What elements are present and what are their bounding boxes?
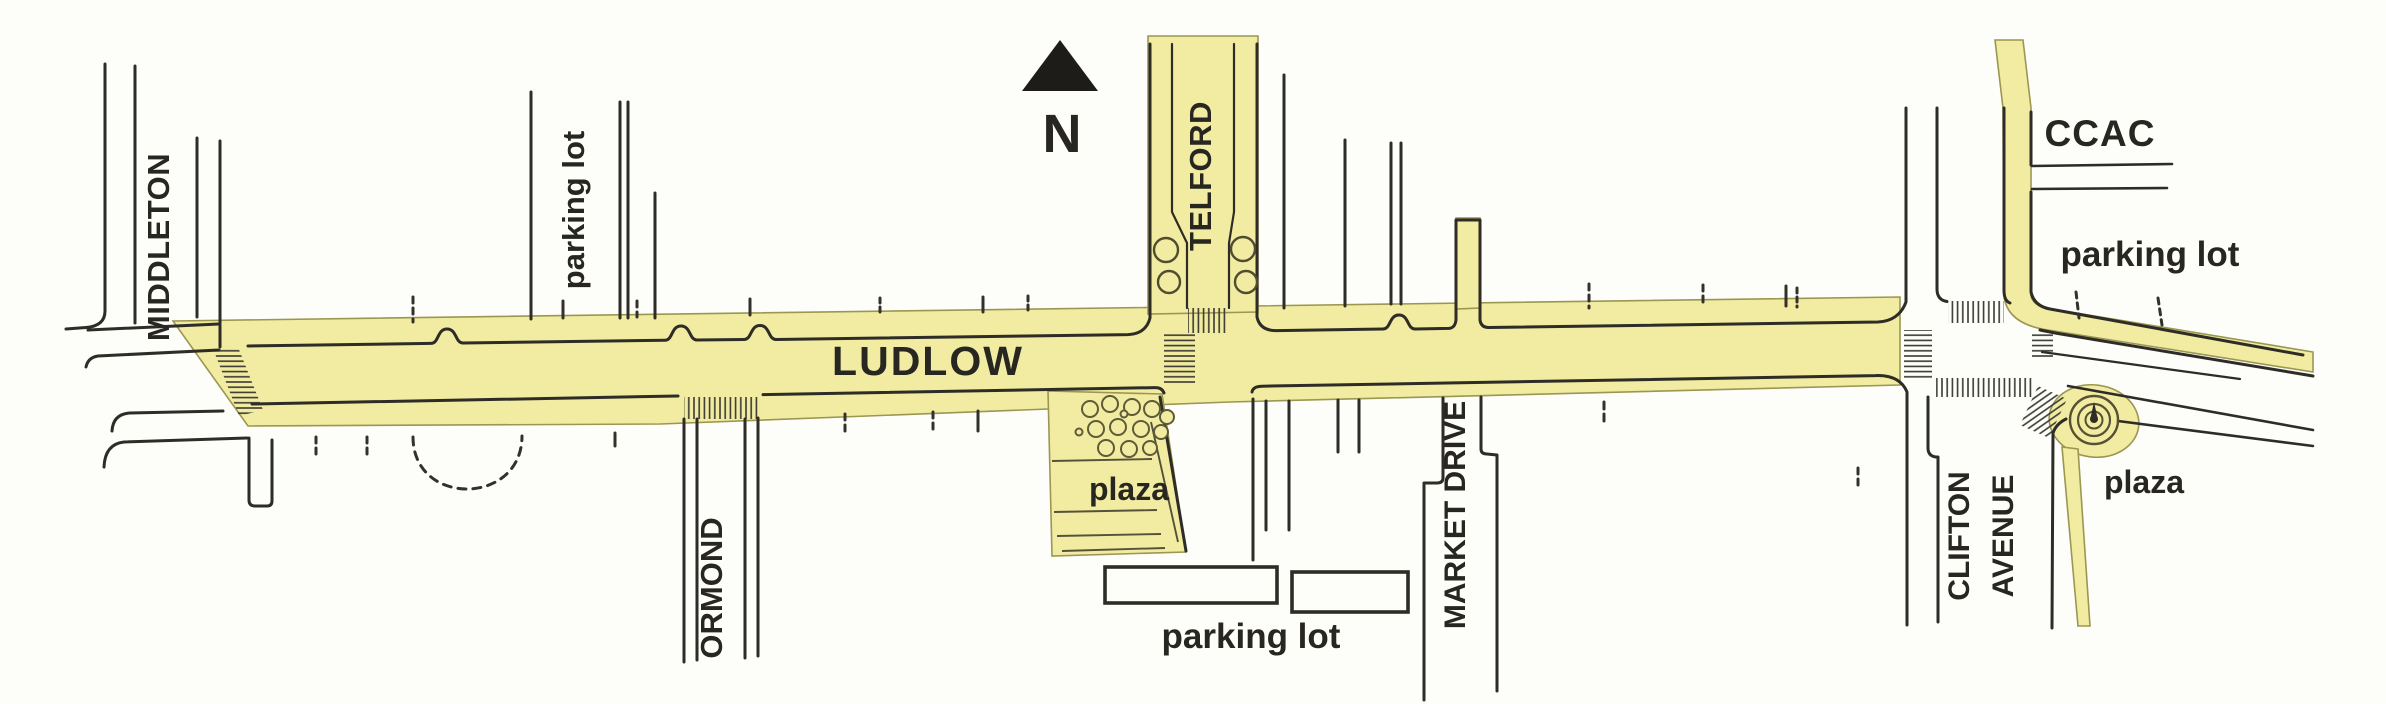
parking-row-east: [1292, 572, 1408, 612]
crosswalk-telford: [1188, 308, 1228, 333]
street-label-clifton: CLIFTON: [1943, 471, 1976, 600]
crosswalk-clifton-east: [2032, 332, 2053, 359]
crosswalk-clifton-west: [1904, 330, 1932, 381]
label-parking-lot-northeast: parking lot: [2061, 235, 2240, 274]
street-label-ludlow: LUDLOW: [832, 338, 1024, 384]
label-ccac: CCAC: [2045, 113, 2156, 154]
street-label-telford: TELFORD: [1183, 101, 1218, 251]
compass-label: N: [1043, 104, 1082, 164]
fountain-icon: [2070, 396, 2118, 444]
street-label-market-drive: MARKET DRIVE: [1439, 401, 1472, 629]
clifton-south-east-edge: [2052, 433, 2053, 628]
label-parking-lot-west: parking lot: [556, 131, 591, 289]
crosswalk-clifton-south: [1936, 378, 2033, 397]
street-map: N MIDDLETON parking lot TELFORD LUDLOW O…: [0, 0, 2386, 704]
street-map-canvas: N MIDDLETON parking lot TELFORD LUDLOW O…: [0, 0, 2386, 704]
label-plaza-central: plaza: [1089, 471, 1169, 507]
street-label-middleton: MIDDLETON: [141, 153, 176, 341]
crosswalk-ormond: [684, 397, 758, 419]
market-stub-highlight: [1456, 218, 1480, 309]
street-label-ormond: ORMOND: [694, 517, 729, 658]
crosswalk-ludlow-telford: [1164, 334, 1195, 384]
ccac-driveway-lower: [2032, 188, 2167, 189]
label-plaza-east: plaza: [2104, 464, 2184, 500]
crosswalk-clifton-north: [1948, 301, 2004, 323]
street-label-avenue: AVENUE: [1987, 475, 2020, 598]
label-parking-lot-south: parking lot: [1162, 617, 1341, 656]
parking-row-west: [1105, 567, 1277, 603]
